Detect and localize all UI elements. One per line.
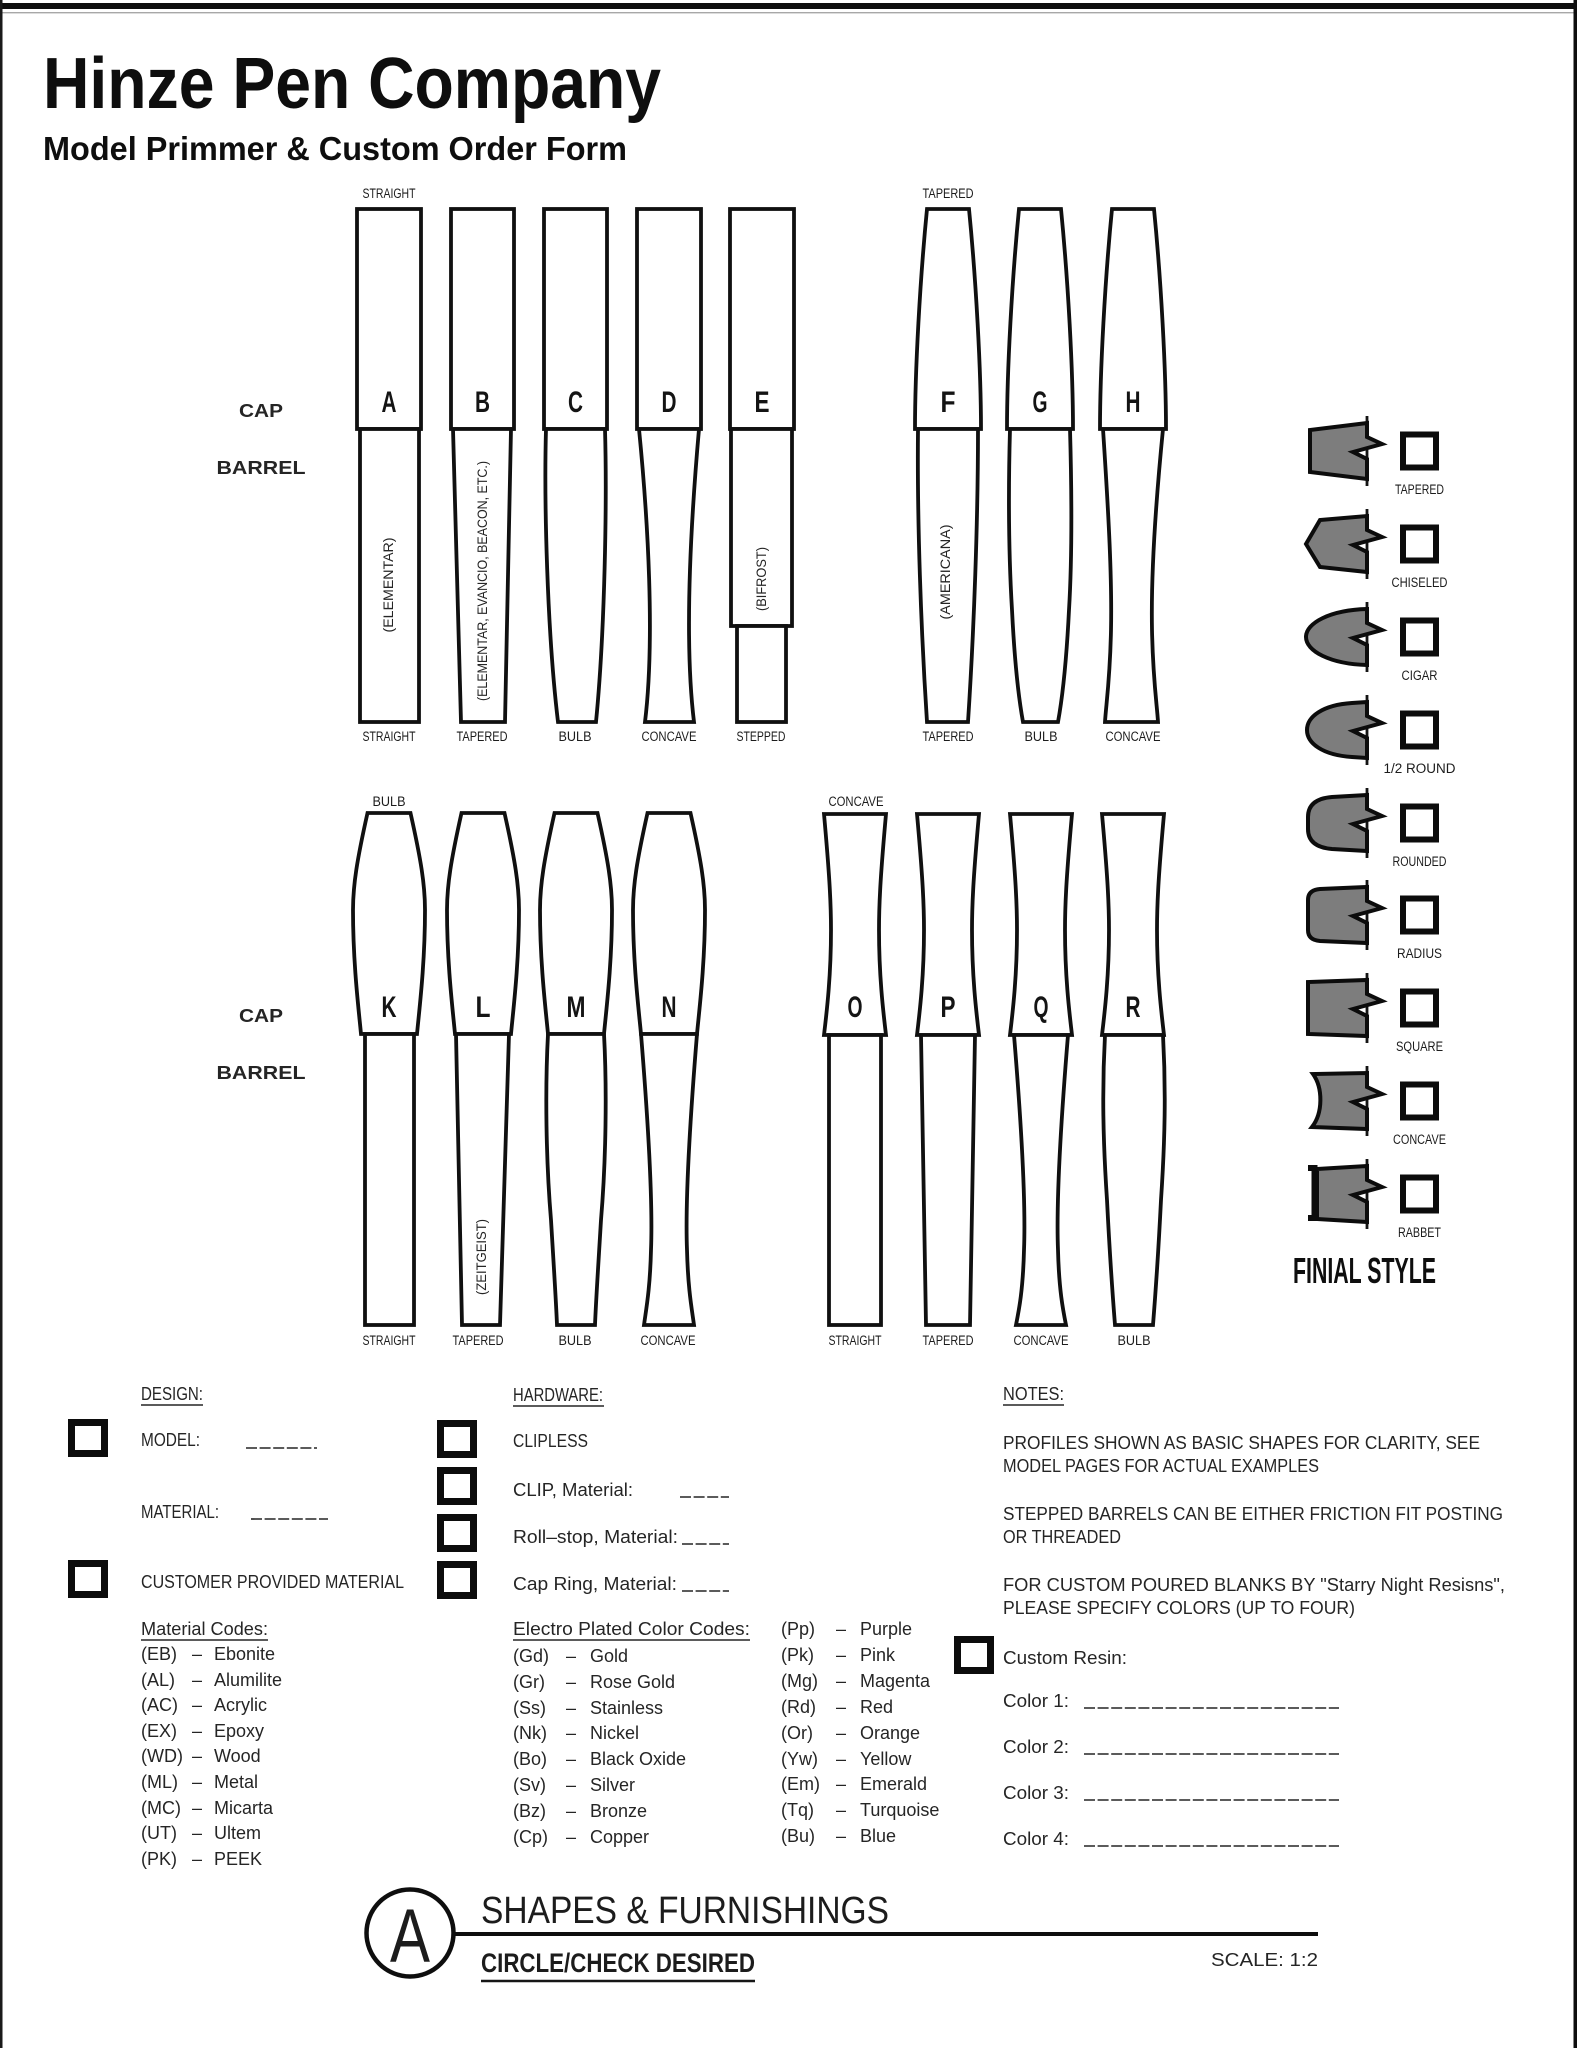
svg-text:Model Primmer & Custom Order F: Model Primmer & Custom Order Form bbox=[43, 130, 627, 167]
svg-text:RABBET: RABBET bbox=[1398, 1225, 1441, 1240]
svg-text:Color 2:: Color 2: bbox=[1003, 1737, 1069, 1757]
svg-text:(Tq)–Turquoise: (Tq)–Turquoise bbox=[781, 1800, 939, 1820]
svg-text:TAPERED: TAPERED bbox=[457, 729, 508, 744]
svg-text:STEPPED BARRELS CAN BE EIT: STEPPED BARRELS CAN BE EITHER FRICTION F… bbox=[1003, 1504, 1503, 1524]
svg-text:CONCAVE: CONCAVE bbox=[829, 794, 884, 809]
svg-text:MATERIAL:: MATERIAL: bbox=[141, 1502, 219, 1522]
svg-text:TAPERED: TAPERED bbox=[1395, 482, 1444, 497]
svg-text:CAP: CAP bbox=[239, 401, 283, 421]
svg-text:L: L bbox=[476, 991, 491, 1024]
svg-text:(BIFROST): (BIFROST) bbox=[753, 547, 769, 611]
svg-text:CONCAVE: CONCAVE bbox=[1393, 1132, 1446, 1147]
svg-text:BARREL: BARREL bbox=[217, 458, 306, 478]
svg-text:(Pk)–Pink: (Pk)–Pink bbox=[781, 1645, 896, 1665]
svg-text:G: G bbox=[1033, 386, 1048, 419]
svg-text:Color 1:: Color 1: bbox=[1003, 1691, 1069, 1711]
svg-text:BULB: BULB bbox=[1118, 1333, 1151, 1348]
svg-text:Electro Plated Color Codes:: Electro Plated Color Codes: bbox=[513, 1619, 750, 1639]
svg-text:CONCAVE: CONCAVE bbox=[642, 729, 697, 744]
svg-text:Color 4:: Color 4: bbox=[1003, 1829, 1069, 1849]
svg-text:(ELEMENTAR, EVANCIO, BEACON, E: (ELEMENTAR, EVANCIO, BEACON, ETC.) bbox=[474, 461, 490, 701]
svg-text:Color 3:: Color 3: bbox=[1003, 1783, 1069, 1803]
svg-text:BULB: BULB bbox=[373, 794, 406, 809]
svg-text:CAP: CAP bbox=[239, 1006, 283, 1026]
svg-text:SHAPES & FURNISHINGS: SHAPES & FURNISHINGS bbox=[481, 1890, 889, 1932]
svg-text:N: N bbox=[662, 991, 677, 1024]
svg-text:(ELEMENTAR): (ELEMENTAR) bbox=[380, 538, 396, 633]
svg-text:TAPERED: TAPERED bbox=[923, 729, 974, 744]
svg-text:SCALE: 1:2: SCALE: 1:2 bbox=[1211, 1950, 1318, 1970]
svg-text:PROFILES SHOWN AS BASIC SH: PROFILES SHOWN AS BASIC SHAPES FOR CLARI… bbox=[1003, 1433, 1480, 1453]
svg-text:(Gr)–Rose Gold: (Gr)–Rose Gold bbox=[513, 1672, 675, 1692]
svg-text:(PK)–PEEK: (PK)–PEEK bbox=[141, 1849, 262, 1869]
svg-text:H: H bbox=[1126, 386, 1141, 419]
svg-text:(AMERICANA): (AMERICANA) bbox=[937, 525, 953, 620]
svg-text:CLIP, Material:: CLIP, Material: bbox=[513, 1480, 633, 1500]
svg-text:(WD)–Wood: (WD)–Wood bbox=[141, 1746, 261, 1766]
svg-text:BARREL: BARREL bbox=[217, 1063, 306, 1083]
svg-text:P: P bbox=[941, 991, 956, 1024]
svg-text:E: E bbox=[755, 386, 770, 419]
svg-text:D: D bbox=[662, 386, 677, 419]
svg-text:CONCAVE: CONCAVE bbox=[1014, 1333, 1069, 1348]
svg-text:R: R bbox=[1126, 991, 1141, 1024]
svg-text:Hinze Pen Company: Hinze Pen Company bbox=[43, 44, 661, 124]
svg-text:STRAIGHT: STRAIGHT bbox=[363, 729, 416, 744]
svg-text:CONCAVE: CONCAVE bbox=[641, 1333, 696, 1348]
svg-text:A: A bbox=[390, 1894, 430, 1979]
svg-text:(Bu)–Blue: (Bu)–Blue bbox=[781, 1826, 896, 1846]
svg-text:OR THREADED: OR THREADED bbox=[1003, 1527, 1121, 1547]
svg-text:(Nk)–Nickel: (Nk)–Nickel bbox=[513, 1723, 639, 1743]
svg-text:STRAIGHT: STRAIGHT bbox=[363, 1333, 416, 1348]
svg-text:F: F bbox=[941, 386, 956, 419]
svg-text:C: C bbox=[568, 386, 583, 419]
svg-text:TAPERED: TAPERED bbox=[923, 1333, 974, 1348]
svg-text:(Bo)–Black Oxide: (Bo)–Black Oxide bbox=[513, 1749, 686, 1769]
svg-text:1/2 ROUND: 1/2 ROUND bbox=[1384, 761, 1456, 776]
svg-text:ROUNDED: ROUNDED bbox=[1393, 854, 1447, 869]
svg-text:CIGAR: CIGAR bbox=[1402, 668, 1438, 683]
svg-text:(Rd)–Red: (Rd)–Red bbox=[781, 1697, 893, 1717]
svg-text:HARDWARE:: HARDWARE: bbox=[513, 1385, 603, 1405]
svg-text:O: O bbox=[848, 991, 863, 1024]
svg-text:(ML)–Metal: (ML)–Metal bbox=[141, 1772, 258, 1792]
svg-text:STEPPED: STEPPED bbox=[737, 729, 786, 744]
svg-text:Q: Q bbox=[1034, 991, 1049, 1024]
svg-text:FINIAL STYLE: FINIAL STYLE bbox=[1293, 1250, 1436, 1291]
svg-text:Custom Resin:: Custom Resin: bbox=[1003, 1648, 1127, 1668]
svg-text:B: B bbox=[475, 386, 490, 419]
svg-text:Material Codes:: Material Codes: bbox=[141, 1619, 268, 1639]
svg-text:BULB: BULB bbox=[559, 729, 592, 744]
svg-text:(Sv)–Silver: (Sv)–Silver bbox=[513, 1775, 635, 1795]
svg-text:(Gd)–Gold: (Gd)–Gold bbox=[513, 1646, 628, 1666]
svg-text:A: A bbox=[382, 386, 397, 419]
svg-text:Roll–stop, Material:: Roll–stop, Material: bbox=[513, 1527, 678, 1547]
svg-text:SQUARE: SQUARE bbox=[1396, 1039, 1443, 1054]
svg-text:(UT)–Ultem: (UT)–Ultem bbox=[141, 1823, 261, 1843]
svg-text:BULB: BULB bbox=[559, 1333, 592, 1348]
svg-text:DESIGN:: DESIGN: bbox=[141, 1384, 203, 1404]
svg-text:CUSTOMER PROVIDED MATERIAL: CUSTOMER PROVIDED MATERIAL bbox=[141, 1572, 404, 1592]
svg-text:MODEL PAGES FOR ACTUAL EXA: MODEL PAGES FOR ACTUAL EXAMPLES bbox=[1003, 1456, 1319, 1476]
svg-text:(ZEITGEIST): (ZEITGEIST) bbox=[473, 1219, 489, 1295]
svg-text:TAPERED: TAPERED bbox=[923, 186, 974, 201]
svg-text:RADIUS: RADIUS bbox=[1397, 946, 1442, 961]
svg-text:STRAIGHT: STRAIGHT bbox=[829, 1333, 882, 1348]
svg-text:TAPERED: TAPERED bbox=[453, 1333, 504, 1348]
svg-text:MODEL:: MODEL: bbox=[141, 1430, 200, 1450]
svg-text:BULB: BULB bbox=[1025, 729, 1058, 744]
svg-text:FOR CUSTOM POURED BLANKS B: FOR CUSTOM POURED BLANKS BY "Starry Nigh… bbox=[1003, 1575, 1505, 1595]
svg-text:CLIPLESS: CLIPLESS bbox=[513, 1431, 588, 1451]
svg-text:STRAIGHT: STRAIGHT bbox=[363, 186, 416, 201]
svg-text:K: K bbox=[382, 991, 397, 1024]
svg-text:CONCAVE: CONCAVE bbox=[1106, 729, 1161, 744]
svg-text:CIRCLE/CHECK DESIRED: CIRCLE/CHECK DESIRED bbox=[481, 1948, 755, 1978]
svg-text:PLEASE SPECIFY COLORS (UP: PLEASE SPECIFY COLORS (UP TO FOUR) bbox=[1003, 1598, 1355, 1618]
svg-text:M: M bbox=[567, 991, 586, 1024]
svg-text:CHISELED: CHISELED bbox=[1392, 575, 1448, 590]
svg-text:NOTES:: NOTES: bbox=[1003, 1384, 1064, 1404]
svg-text:Cap Ring, Material:: Cap Ring, Material: bbox=[513, 1574, 677, 1594]
